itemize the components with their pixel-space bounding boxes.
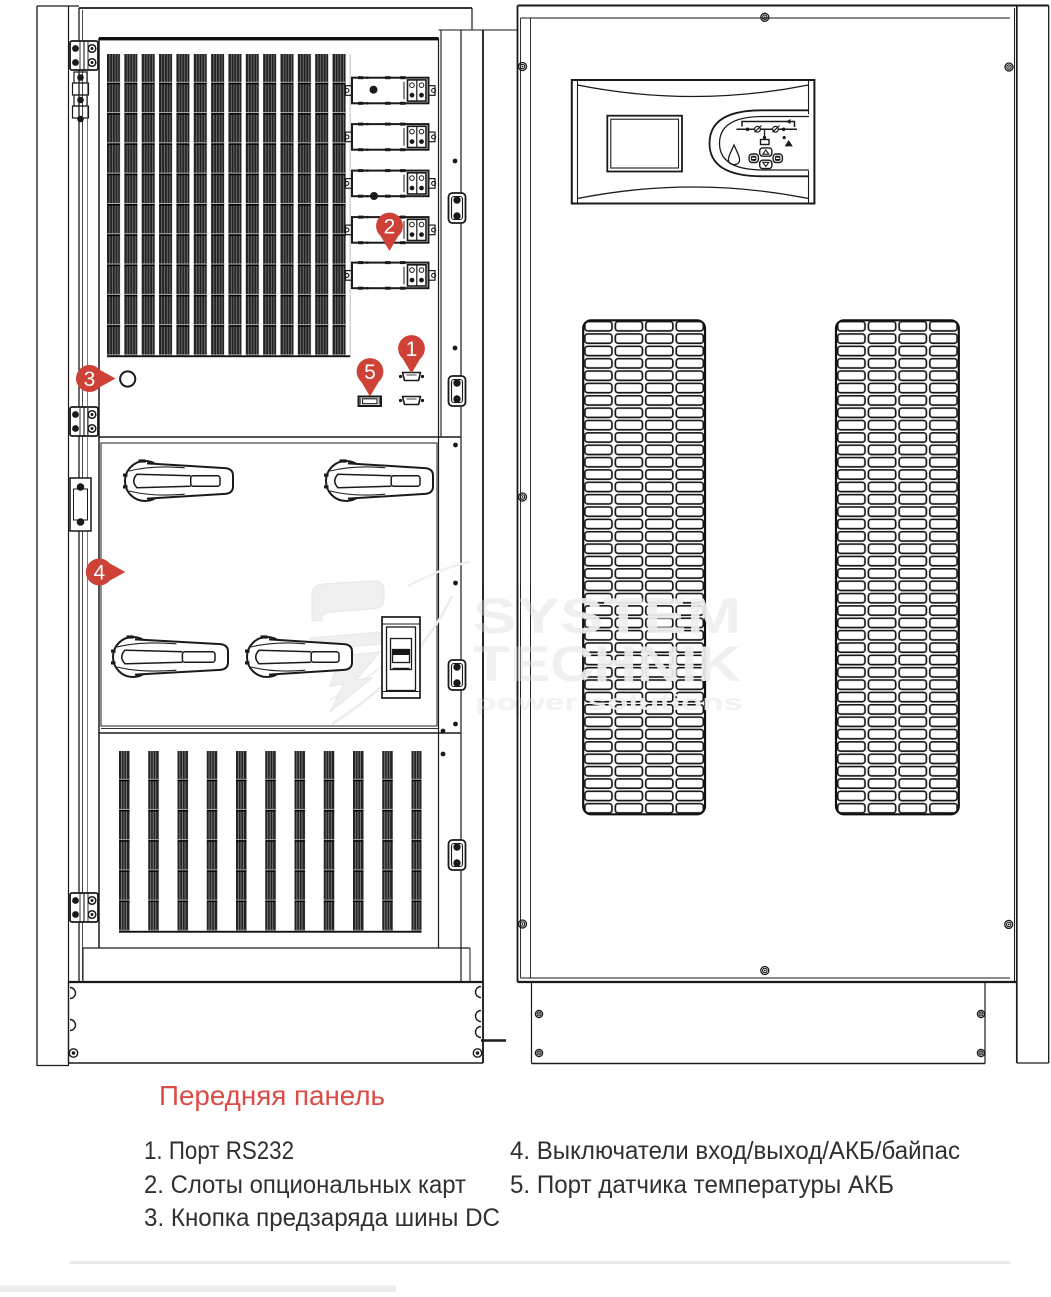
svg-text:TECHNIK: TECHNIK <box>473 636 741 692</box>
svg-text:4. Выключатели вход/выход/АКБ/: 4. Выключатели вход/выход/АКБ/байпас <box>510 1137 960 1165</box>
svg-text:3: 3 <box>84 368 96 391</box>
svg-text:2: 2 <box>384 215 396 238</box>
svg-text:4: 4 <box>93 561 105 584</box>
svg-text:3. Кнопка предзаряда шины DC: 3. Кнопка предзаряда шины DC <box>144 1204 500 1232</box>
svg-text:1: 1 <box>406 338 418 361</box>
svg-text:power solutions: power solutions <box>475 690 743 715</box>
svg-text:Передняя панель: Передняя панель <box>159 1080 385 1111</box>
svg-text:5: 5 <box>364 361 376 384</box>
svg-text:2. Слоты опциональных карт: 2. Слоты опциональных карт <box>144 1171 467 1199</box>
svg-text:1. Порт RS232: 1. Порт RS232 <box>144 1137 294 1165</box>
svg-text:5. Порт датчика температуры АК: 5. Порт датчика температуры АКБ <box>510 1171 894 1199</box>
